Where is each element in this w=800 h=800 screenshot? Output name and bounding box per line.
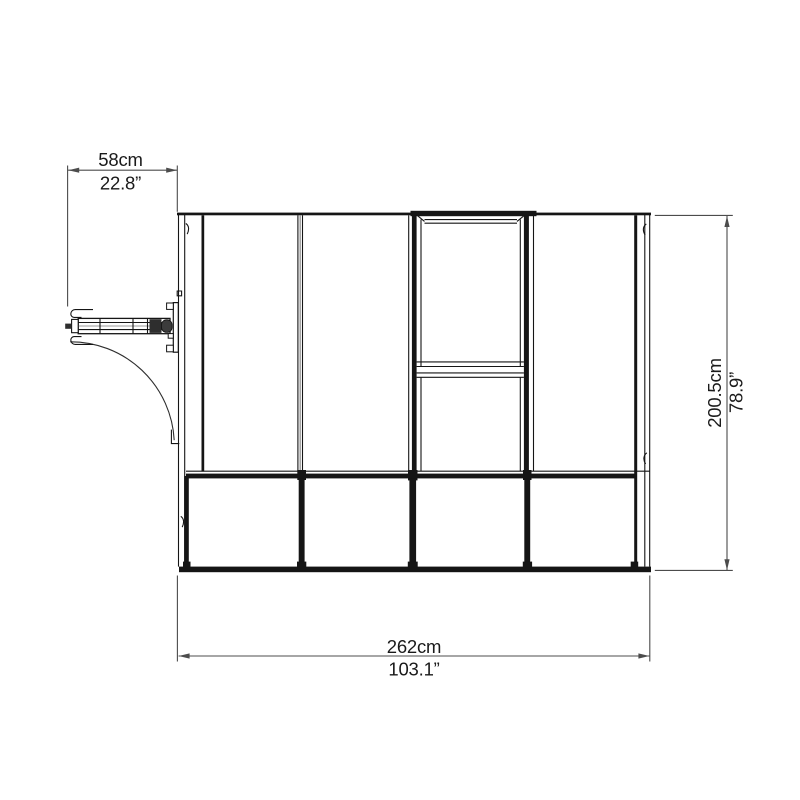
- greenhouse-dimension-drawing: 58cm 22.8” 262cm 103.1” 200.5cm 78.9”: [0, 0, 800, 800]
- vent-lower-panel: [417, 373, 524, 472]
- door-end-cap: [72, 319, 79, 332]
- base-divider-3: [524, 478, 530, 566]
- base-divider-1: [299, 478, 305, 566]
- hinge-tab-mid: [168, 334, 173, 339]
- left-wall-upper-thick: [202, 215, 205, 471]
- dimension-door-width: 58cm 22.8”: [68, 149, 178, 307]
- bottom-edge: [179, 567, 651, 573]
- base-foot-left: [183, 562, 191, 567]
- vent-frame-left: [412, 215, 417, 471]
- door-hinge-barrel: [162, 320, 173, 333]
- base-foot-2: [408, 562, 418, 567]
- arrow-right-icon: [638, 653, 649, 658]
- roof-vent-window: [417, 216, 525, 367]
- hinge-plate: [173, 303, 178, 353]
- door-swing-arc: [70, 342, 174, 440]
- arrow-up-icon: [724, 216, 729, 227]
- door-width-metric-label: 58cm: [98, 149, 142, 170]
- hinge-tab-top: [167, 303, 174, 309]
- overall-width-metric-label: 262cm: [387, 636, 442, 657]
- overall-depth-imperial-label: 78.9”: [726, 372, 747, 413]
- overall-width-imperial-label: 103.1”: [388, 659, 439, 680]
- dimension-overall-width: 262cm 103.1”: [177, 576, 649, 680]
- vent-top-rail: [417, 216, 524, 224]
- dimension-overall-depth: 200.5cm 78.9”: [655, 215, 747, 570]
- vent-bottom-rail: [417, 362, 524, 367]
- door-width-imperial-label: 22.8”: [100, 173, 141, 194]
- overall-depth-metric-label: 200.5cm: [704, 358, 725, 428]
- right-wall-lines: [645, 215, 650, 567]
- base-foot-3: [523, 562, 532, 567]
- left-wall-lines: [179, 215, 185, 567]
- left-wall-lower-thick: [184, 476, 189, 567]
- base-foot-right: [631, 562, 639, 567]
- base-foot-1: [297, 562, 306, 567]
- door-assembly: [65, 303, 179, 444]
- arrow-down-icon: [724, 559, 729, 570]
- door-end-tip: [65, 324, 71, 329]
- vent-frame-right: [524, 215, 529, 471]
- door-handle-top: [71, 310, 93, 318]
- hinge-tab-bottom: [167, 345, 174, 352]
- arrow-left-icon: [179, 653, 190, 658]
- arrow-right-icon: [166, 168, 177, 173]
- lower-panel-top-rail: [417, 373, 524, 377]
- vent-top-bar: [411, 211, 537, 216]
- lower-panel-inner-frame: [421, 377, 520, 471]
- drawing-canvas: 58cm 22.8” 262cm 103.1” 200.5cm 78.9”: [0, 0, 800, 800]
- vent-inner-frame: [421, 220, 520, 368]
- door-latch-block: [150, 319, 162, 333]
- base-divider-2: [409, 478, 416, 566]
- arrow-left-icon: [68, 168, 79, 173]
- greenhouse-structure: [177, 211, 651, 572]
- right-wall-thick: [634, 215, 637, 566]
